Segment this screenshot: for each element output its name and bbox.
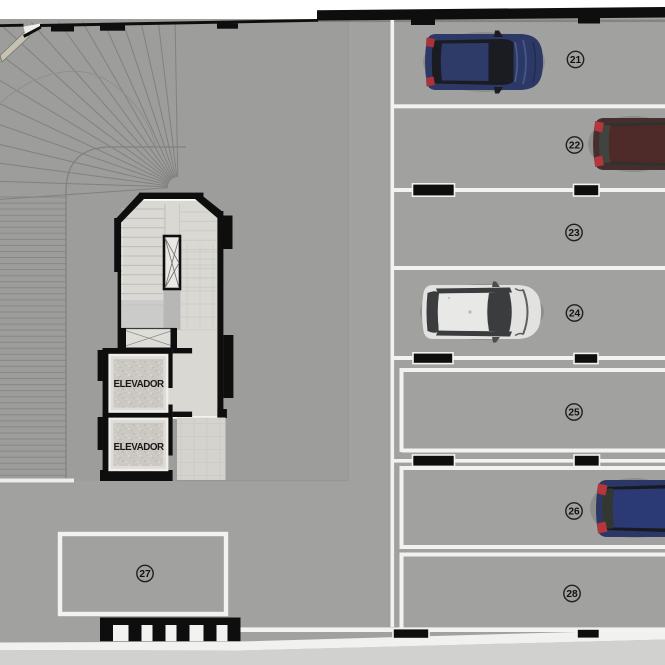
svg-text:28: 28	[566, 589, 578, 600]
svg-text:23: 23	[568, 228, 580, 239]
svg-text:26: 26	[568, 507, 580, 518]
svg-text:21: 21	[570, 55, 582, 66]
svg-text:22: 22	[569, 141, 581, 152]
svg-text:27: 27	[139, 569, 151, 580]
svg-text:25: 25	[568, 408, 580, 419]
svg-text:ELEVADOR: ELEVADOR	[114, 442, 164, 453]
svg-text:24: 24	[569, 309, 581, 320]
svg-text:ELEVADOR: ELEVADOR	[114, 379, 164, 390]
